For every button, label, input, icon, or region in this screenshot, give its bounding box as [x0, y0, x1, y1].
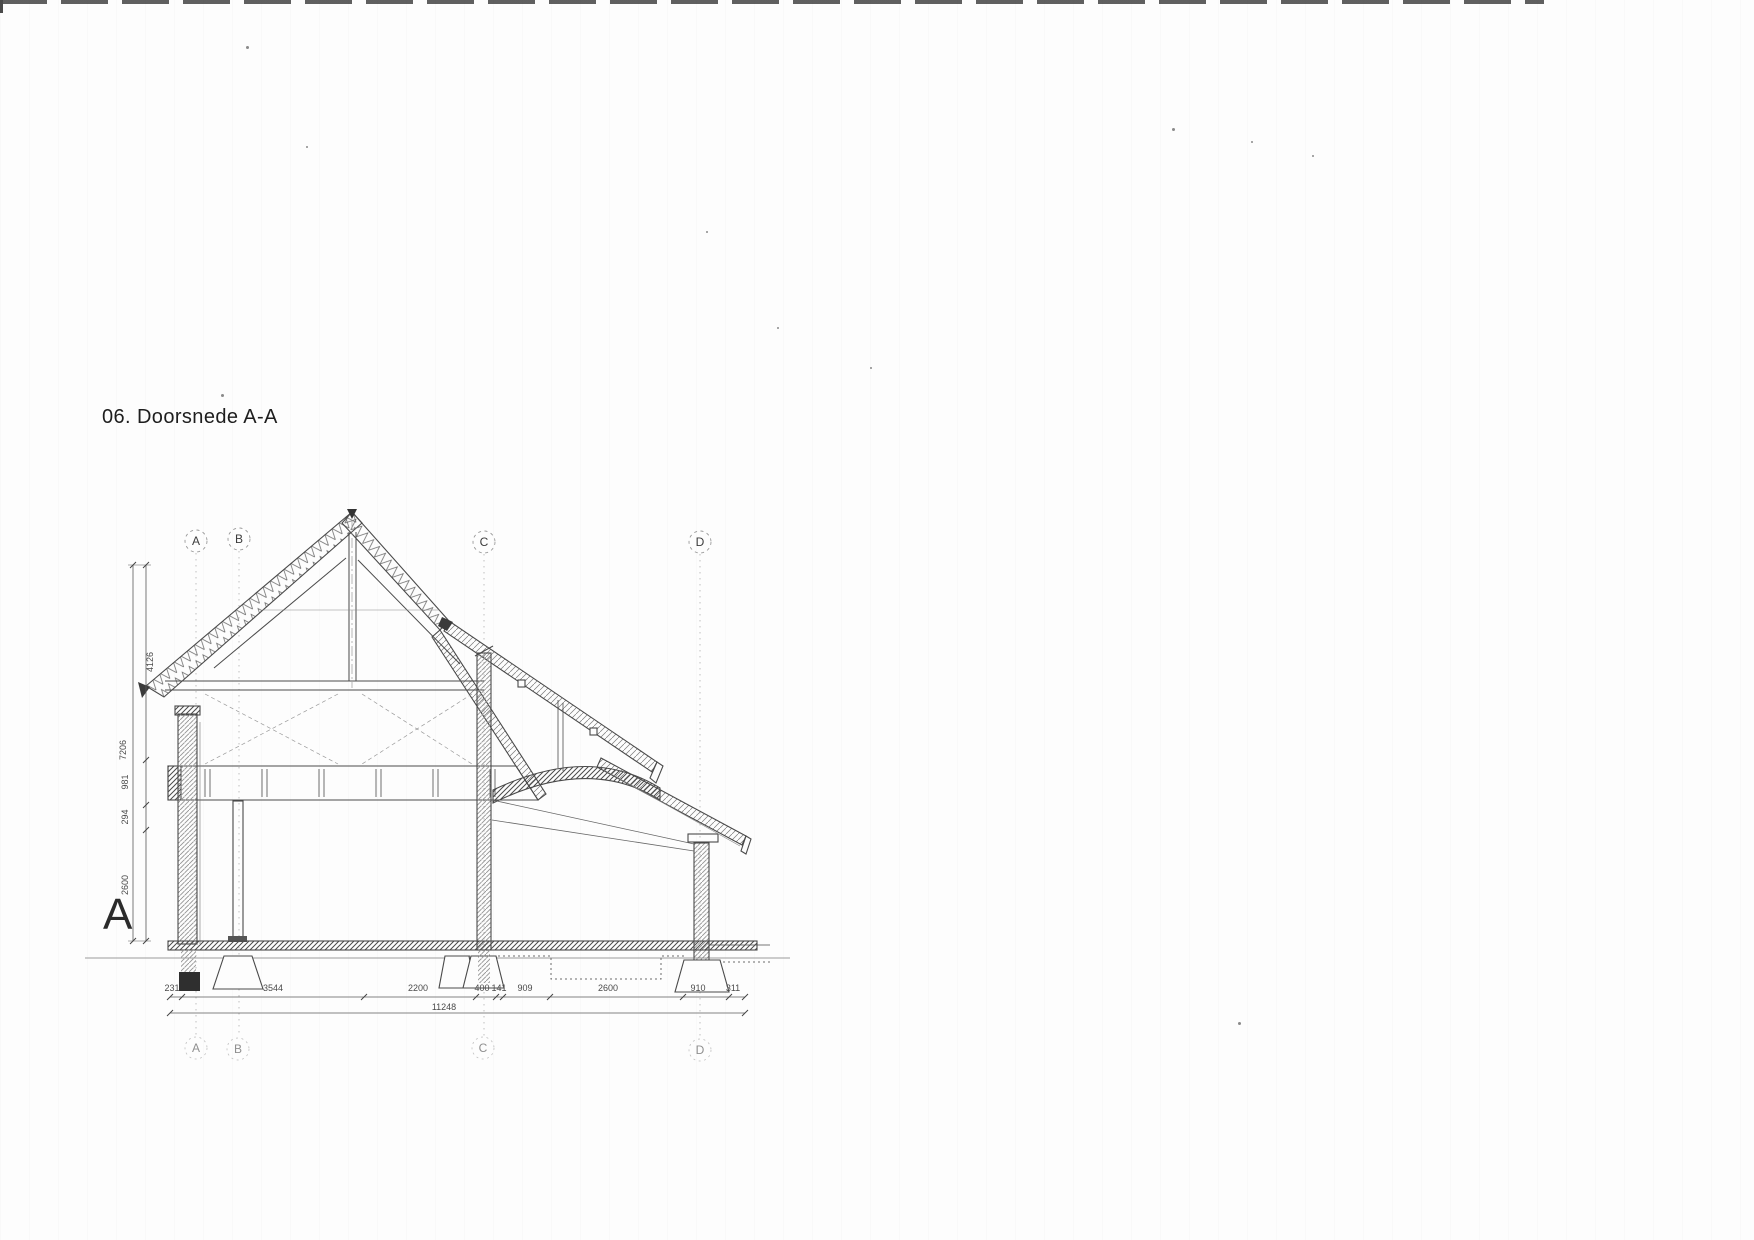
footing-b	[213, 956, 263, 989]
roof-brace-1	[492, 800, 694, 844]
middle-wall-stub	[478, 950, 490, 983]
dim-label-294: 294	[120, 809, 130, 824]
scan-speck	[246, 46, 249, 49]
eave-beam-d	[688, 834, 718, 842]
bubble-letter: D	[696, 1043, 705, 1057]
dim-label-total: 11248	[432, 1002, 456, 1012]
bubble-letter: C	[479, 1041, 488, 1055]
grid-bubble-top-d: D	[689, 531, 711, 553]
scan-speck	[706, 231, 708, 233]
left-wall-stub	[181, 950, 196, 972]
dim-label-910: 910	[690, 983, 705, 993]
dim-label-2200: 2200	[408, 983, 428, 993]
dim-label-141: 141	[491, 983, 506, 993]
ground-slab	[168, 941, 757, 950]
bubble-letter: A	[192, 1041, 200, 1055]
curved-roof-beam	[493, 767, 660, 804]
section-drawing: 4126 7206 981 294 2600	[0, 0, 1754, 1240]
bracing-dashed	[205, 694, 472, 764]
rafter-underside	[604, 770, 740, 846]
purlin-block-2	[590, 728, 597, 735]
bubble-letter: C	[480, 535, 489, 549]
left-footing-filled	[179, 972, 200, 991]
middle-wall-c	[477, 653, 491, 950]
dim-label-4126: 4126	[145, 652, 155, 672]
dim-label-231: 231	[164, 983, 179, 993]
scan-speck	[1312, 155, 1314, 157]
scan-speck	[777, 327, 779, 329]
scan-speck	[1238, 1022, 1241, 1025]
roof-left-slope	[146, 512, 362, 697]
building-section-linework	[85, 509, 790, 992]
interior-post-b	[233, 801, 243, 939]
dim-label-3544: 3544	[263, 983, 283, 993]
scan-speck	[1251, 141, 1253, 143]
scan-speck	[306, 146, 308, 148]
floor-joists	[205, 769, 495, 797]
grid-bubble-top-c: C	[473, 531, 495, 553]
grid-bubble-top-a: A	[185, 530, 207, 552]
dim-label-400: 400	[474, 983, 489, 993]
dim-label-981: 981	[120, 774, 130, 789]
roof-right-upper-slope	[342, 512, 449, 630]
dimension-left: 4126 7206 981 294 2600	[118, 562, 155, 944]
grid-bubbles-top: A B C D	[185, 528, 711, 553]
dim-label-7206: 7206	[118, 740, 128, 760]
grid-bubble-bottom-a: A	[185, 1037, 207, 1059]
bubble-letter: B	[234, 1042, 242, 1056]
grid-bubble-top-b: B	[228, 528, 250, 550]
bubble-letter: B	[235, 532, 243, 546]
bubble-letter: A	[192, 534, 200, 548]
scan-speck	[1172, 128, 1175, 131]
purlin-block-1	[518, 680, 525, 687]
grid-bubble-bottom-b: B	[227, 1038, 249, 1060]
grid-bubble-bottom-d: D	[689, 1039, 711, 1061]
left-wall	[178, 714, 197, 944]
dim-label-909: 909	[517, 983, 532, 993]
grid-bubbles-bottom: A B C D	[185, 1037, 711, 1061]
grid-bubble-bottom-c: C	[472, 1037, 494, 1059]
brace-line	[362, 694, 472, 764]
scanned-drawing-page: 06. Doorsnede A-A A	[0, 0, 1754, 1240]
bubble-letter: D	[696, 535, 705, 549]
roof-brace-2	[492, 820, 694, 851]
dim-label-311: 311	[726, 983, 740, 993]
dim-label-2600: 2600	[598, 983, 618, 993]
dim-label-2600v: 2600	[120, 875, 130, 895]
scan-speck	[221, 394, 224, 397]
scan-speck	[870, 367, 872, 369]
